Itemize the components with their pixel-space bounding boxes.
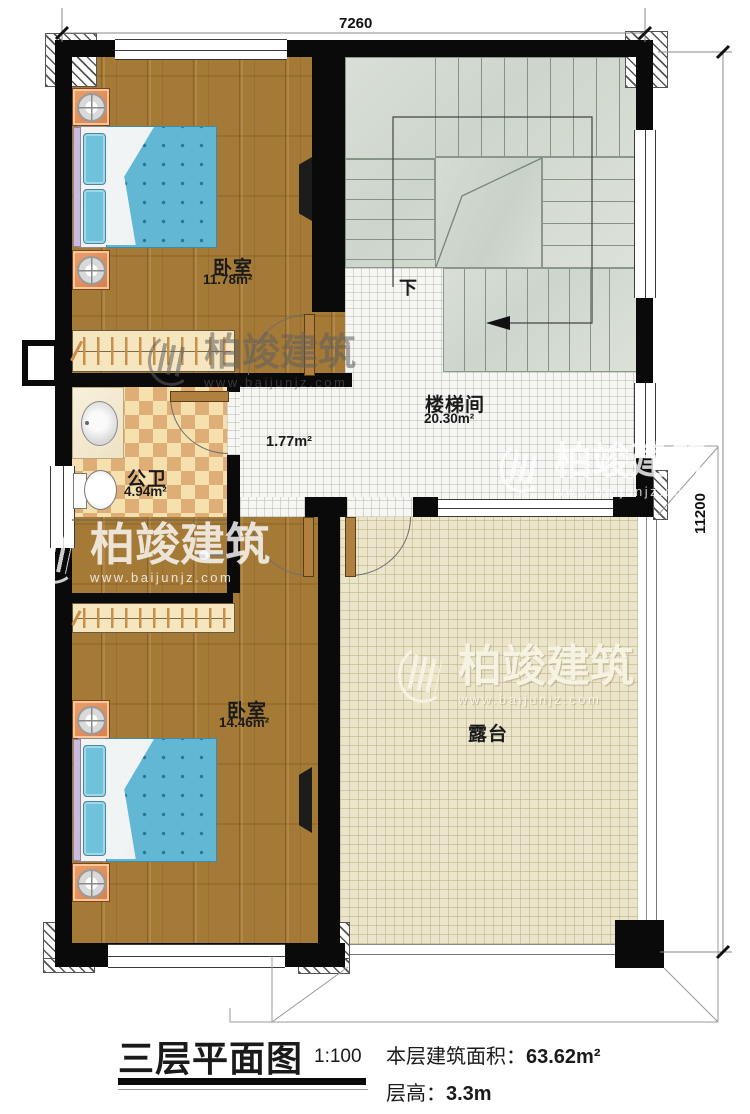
floor-height-label: 层高： [386,1083,446,1105]
room-area-stairwell: 20.30m² [424,411,474,426]
title-underline-thick [118,1078,366,1085]
floor-height-value: 3.3m [446,1083,492,1105]
dimension-top: 7260 [339,15,372,32]
floor-area-row: 本层建筑面积：63.62m² [386,1040,601,1069]
stair-path [393,117,592,323]
plan-title: 三层平面图 [118,1030,303,1082]
dimension-right: 11200 [692,493,709,534]
linework-overlay [0,0,750,1114]
room-area-bedroom-top: 11.78m² [203,272,253,287]
plan-scale: 1:100 [314,1046,362,1068]
floor-plan-canvas: 柏竣建筑 www.baijunjz.com 柏竣建筑 www.baijunjz.… [0,0,750,1114]
room-area-bedroom-bottom: 14.46m² [219,715,269,730]
stair-break-line [436,158,542,267]
floor-area-value: 63.62m² [526,1046,601,1068]
floor-area-label: 本层建筑面积： [386,1046,526,1068]
stair-direction-arrow [486,316,510,330]
room-label-terrace: 露台 [468,719,508,746]
floor-height-row: 层高：3.3m [386,1077,492,1106]
stair-down-label: 下 [399,274,418,300]
title-underline-thin [118,1089,368,1090]
room-area-bathroom: 4.94m² [124,484,167,499]
room-area-hallway: 1.77m² [266,434,312,450]
